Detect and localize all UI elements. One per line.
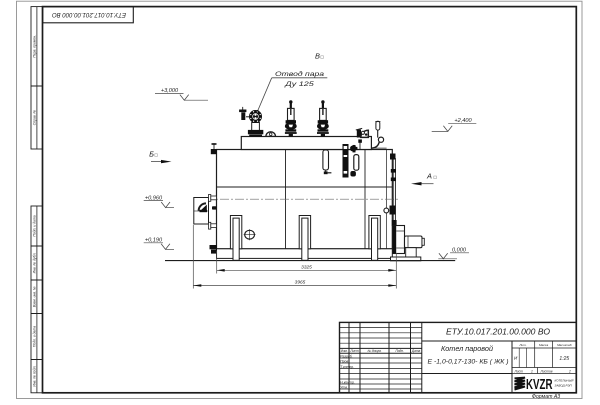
svg-text:ЗАВОД РЭП: ЗАВОД РЭП [555,383,573,387]
svg-text:Подп. и дата: Подп. и дата [32,215,36,236]
svg-text:Б: Б [149,149,154,158]
svg-text:1:25: 1:25 [559,356,569,362]
svg-text:ЕТУ.10.017.201.00.000 ВО: ЕТУ.10.017.201.00.000 ВО [52,11,126,18]
svg-text:Пров.: Пров. [340,359,349,363]
svg-text:Изм.: Изм. [341,349,348,353]
svg-text:КОТЕЛЬНЫЙ: КОТЕЛЬНЫЙ [555,379,575,383]
svg-text:Котел паровой: Котел паровой [441,344,493,353]
svg-text:Перв. примен.: Перв. примен. [32,35,36,58]
svg-text:Лист: Лист [349,349,359,353]
svg-text:+2,400: +2,400 [454,118,472,124]
svg-text:Справ. №: Справ. № [32,109,36,125]
svg-text:1: 1 [531,369,533,373]
svg-text:Н.контр.: Н.контр. [340,380,354,384]
svg-text:3325: 3325 [301,264,312,270]
svg-text:Е -1,0-0,17-130- КБ ( ЖК ): Е -1,0-0,17-130- КБ ( ЖК ) [428,359,509,366]
svg-text:А: А [426,172,432,181]
svg-text:Дата: Дата [411,349,421,353]
svg-text:Отвод пара: Отвод пара [275,70,325,78]
svg-text:ЕТУ.10.017.201.00.000 ВО: ЕТУ.10.017.201.00.000 ВО [446,327,550,337]
svg-text:Подп.: Подп. [395,349,404,353]
svg-text:2: 2 [568,369,571,373]
svg-text:3965: 3965 [295,280,306,286]
svg-text:Инв. № дубл.: Инв. № дубл. [32,253,36,274]
svg-text:Разраб.: Разраб. [340,354,352,358]
svg-text:Инв. № подл.: Инв. № подл. [32,366,36,387]
svg-text:Листов: Листов [540,369,553,373]
svg-text:Формат А3: Формат А3 [532,394,560,400]
svg-text:Ду 125: Ду 125 [284,81,315,88]
svg-text:№ докум.: № докум. [367,349,381,353]
svg-text:Утв.: Утв. [340,385,348,389]
svg-text:Лит.: Лит. [518,343,526,347]
svg-text:Подп. и дата: Подп. и дата [32,326,36,347]
svg-text:KVZR: KVZR [526,377,553,393]
svg-text:В: В [315,51,320,60]
svg-text:Т.контр.: Т.контр. [340,365,354,369]
svg-text:Лист: Лист [514,369,524,373]
svg-text:Масштаб: Масштаб [557,343,572,347]
svg-text:Масса: Масса [539,343,548,347]
svg-text:Взам. инв. №: Взам. инв. № [32,286,36,307]
